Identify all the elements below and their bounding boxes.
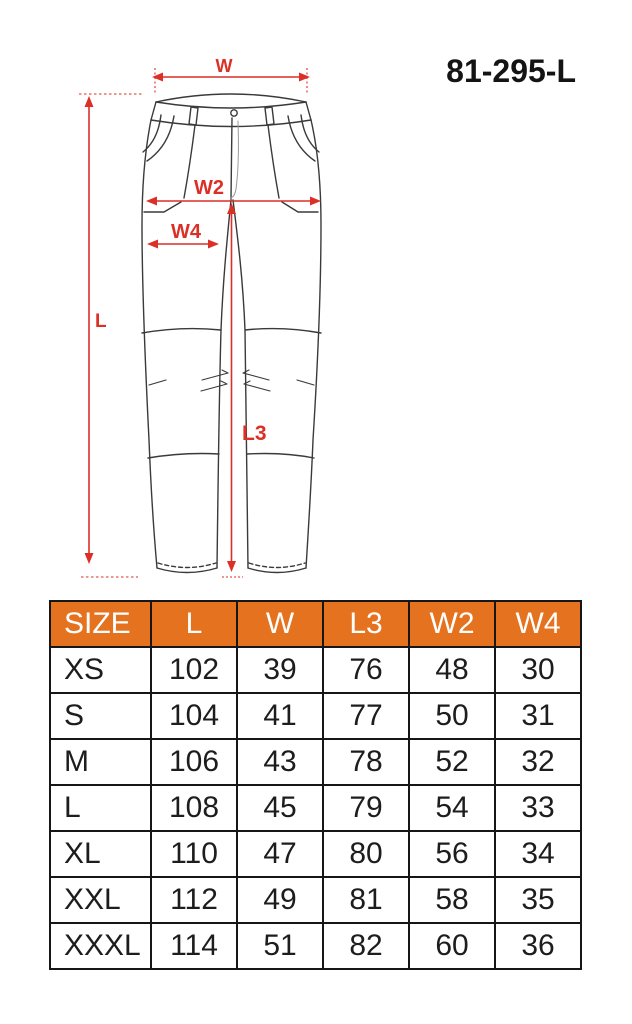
- size-cell: XS: [50, 647, 151, 693]
- value-cell: 32: [495, 739, 581, 785]
- belt-loop-left-icon: [189, 107, 198, 125]
- size-chart-page: 81-295-L: [0, 0, 632, 1024]
- value-cell: 79: [323, 785, 409, 831]
- value-cell: 80: [323, 831, 409, 877]
- dim-w2-label: W2: [194, 177, 224, 199]
- value-cell: 43: [237, 739, 323, 785]
- value-cell: 81: [323, 877, 409, 923]
- value-cell: 58: [409, 877, 495, 923]
- dim-w2: W2: [146, 177, 321, 206]
- value-cell: 110: [151, 831, 237, 877]
- value-cell: 104: [151, 693, 237, 739]
- waist-button-icon: [231, 110, 237, 116]
- table-row: S 104 41 77 50 31: [50, 693, 581, 739]
- dim-w4: W4: [147, 221, 219, 249]
- value-cell: 108: [151, 785, 237, 831]
- value-cell: 82: [323, 923, 409, 969]
- dim-w4-label: W4: [171, 221, 202, 243]
- value-cell: 112: [151, 877, 237, 923]
- col-header-size: SIZE: [50, 601, 151, 647]
- value-cell: 60: [409, 923, 495, 969]
- dim-w-label: W: [216, 56, 233, 76]
- table-row: XS 102 39 76 48 30: [50, 647, 581, 693]
- dim-l-label: L: [95, 311, 107, 332]
- dim-l3-label: L3: [242, 422, 267, 445]
- value-cell: 49: [237, 877, 323, 923]
- value-cell: 48: [409, 647, 495, 693]
- value-cell: 50: [409, 693, 495, 739]
- col-header-w: W: [237, 601, 323, 647]
- table-row: XL 110 47 80 56 34: [50, 831, 581, 877]
- trousers-measurement-diagram: W L W2: [0, 0, 632, 600]
- value-cell: 39: [237, 647, 323, 693]
- value-cell: 34: [495, 831, 581, 877]
- value-cell: 41: [237, 693, 323, 739]
- value-cell: 76: [323, 647, 409, 693]
- size-cell: L: [50, 785, 151, 831]
- value-cell: 35: [495, 877, 581, 923]
- value-cell: 51: [237, 923, 323, 969]
- value-cell: 56: [409, 831, 495, 877]
- value-cell: 114: [151, 923, 237, 969]
- col-header-w2: W2: [409, 601, 495, 647]
- col-header-l3: L3: [323, 601, 409, 647]
- table-row: L 108 45 79 54 33: [50, 785, 581, 831]
- value-cell: 36: [495, 923, 581, 969]
- size-table: SIZE L W L3 W2 W4 XS 102 39 76 48 30 S 1…: [49, 600, 582, 970]
- dim-w: W: [152, 56, 310, 93]
- value-cell: 77: [323, 693, 409, 739]
- value-cell: 78: [323, 739, 409, 785]
- table-row: XXL 112 49 81 58 35: [50, 877, 581, 923]
- col-header-w4: W4: [495, 601, 581, 647]
- dimension-annotations: W L W2: [79, 56, 321, 577]
- size-cell: M: [50, 739, 151, 785]
- value-cell: 30: [495, 647, 581, 693]
- value-cell: 47: [237, 831, 323, 877]
- dim-l: L: [79, 94, 144, 577]
- value-cell: 54: [409, 785, 495, 831]
- belt-loop-right-icon: [265, 107, 274, 125]
- size-cell: XXXL: [50, 923, 151, 969]
- fly: [231, 118, 238, 199]
- waistband: [151, 94, 311, 127]
- size-cell: XL: [50, 831, 151, 877]
- table-row: XXXL 114 51 82 60 36: [50, 923, 581, 969]
- table-row: M 106 43 78 52 32: [50, 739, 581, 785]
- value-cell: 45: [237, 785, 323, 831]
- size-cell: S: [50, 693, 151, 739]
- value-cell: 102: [151, 647, 237, 693]
- size-cell: XXL: [50, 877, 151, 923]
- value-cell: 52: [409, 739, 495, 785]
- value-cell: 31: [495, 693, 581, 739]
- inner-seams: [217, 200, 248, 568]
- value-cell: 106: [151, 739, 237, 785]
- dim-l3: L3: [222, 203, 267, 577]
- value-cell: 33: [495, 785, 581, 831]
- size-table-header-row: SIZE L W L3 W2 W4: [50, 601, 581, 647]
- col-header-l: L: [151, 601, 237, 647]
